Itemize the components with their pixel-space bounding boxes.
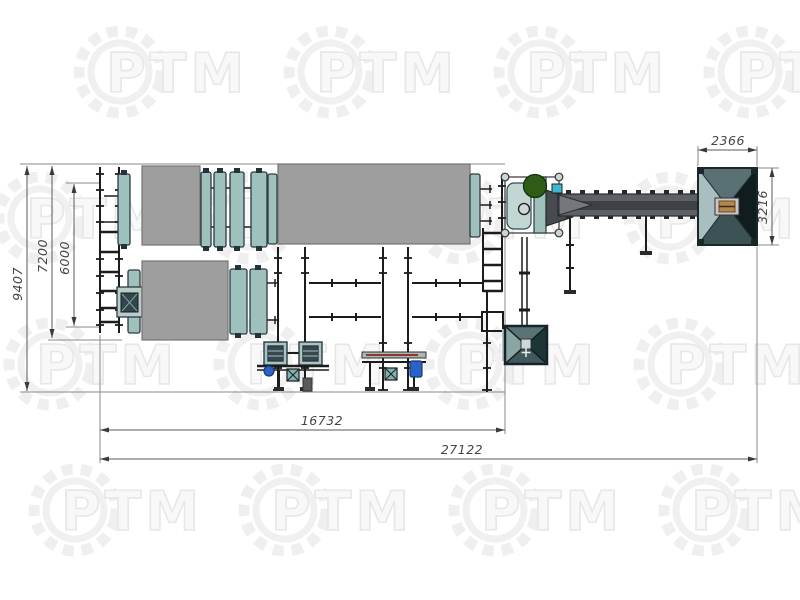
drive-motor-blue	[264, 366, 274, 376]
cyclone-green	[524, 175, 547, 198]
equipment-layout-drawing: РТМ	[0, 0, 800, 600]
dryer-line-bottom	[117, 261, 277, 340]
drive-motor-blue	[410, 361, 422, 377]
burner-box	[117, 287, 142, 317]
dryer-drum	[278, 164, 470, 244]
dim-hopper-width: 2366	[698, 133, 757, 153]
dim-line-length: 16732	[100, 413, 505, 433]
gearbox	[303, 378, 312, 391]
svg-text:3216: 3216	[755, 190, 770, 224]
svg-text:16732: 16732	[301, 413, 343, 428]
sensor-box-cyan	[552, 184, 562, 193]
shaft-pins	[267, 279, 277, 324]
drum-end-ring	[470, 174, 480, 237]
furnace-box	[142, 166, 200, 245]
dryer-line-top	[104, 164, 492, 251]
dim-total-length: 27122	[100, 442, 757, 462]
furnace-box-2	[142, 261, 228, 340]
belt-conveyor	[558, 190, 700, 219]
svg-text:7200: 7200	[35, 239, 50, 273]
svg-text:2366: 2366	[711, 133, 745, 148]
feed-port	[519, 204, 530, 215]
svg-text:9407: 9407	[10, 267, 25, 301]
svg-text:6000: 6000	[57, 241, 72, 275]
svg-text:27122: 27122	[441, 442, 483, 457]
discharge-hopper	[502, 326, 547, 364]
drawing-page: РТМ	[0, 0, 800, 600]
tie-rods	[309, 279, 483, 321]
receiving-hopper	[698, 168, 757, 245]
end-ring	[118, 174, 130, 245]
